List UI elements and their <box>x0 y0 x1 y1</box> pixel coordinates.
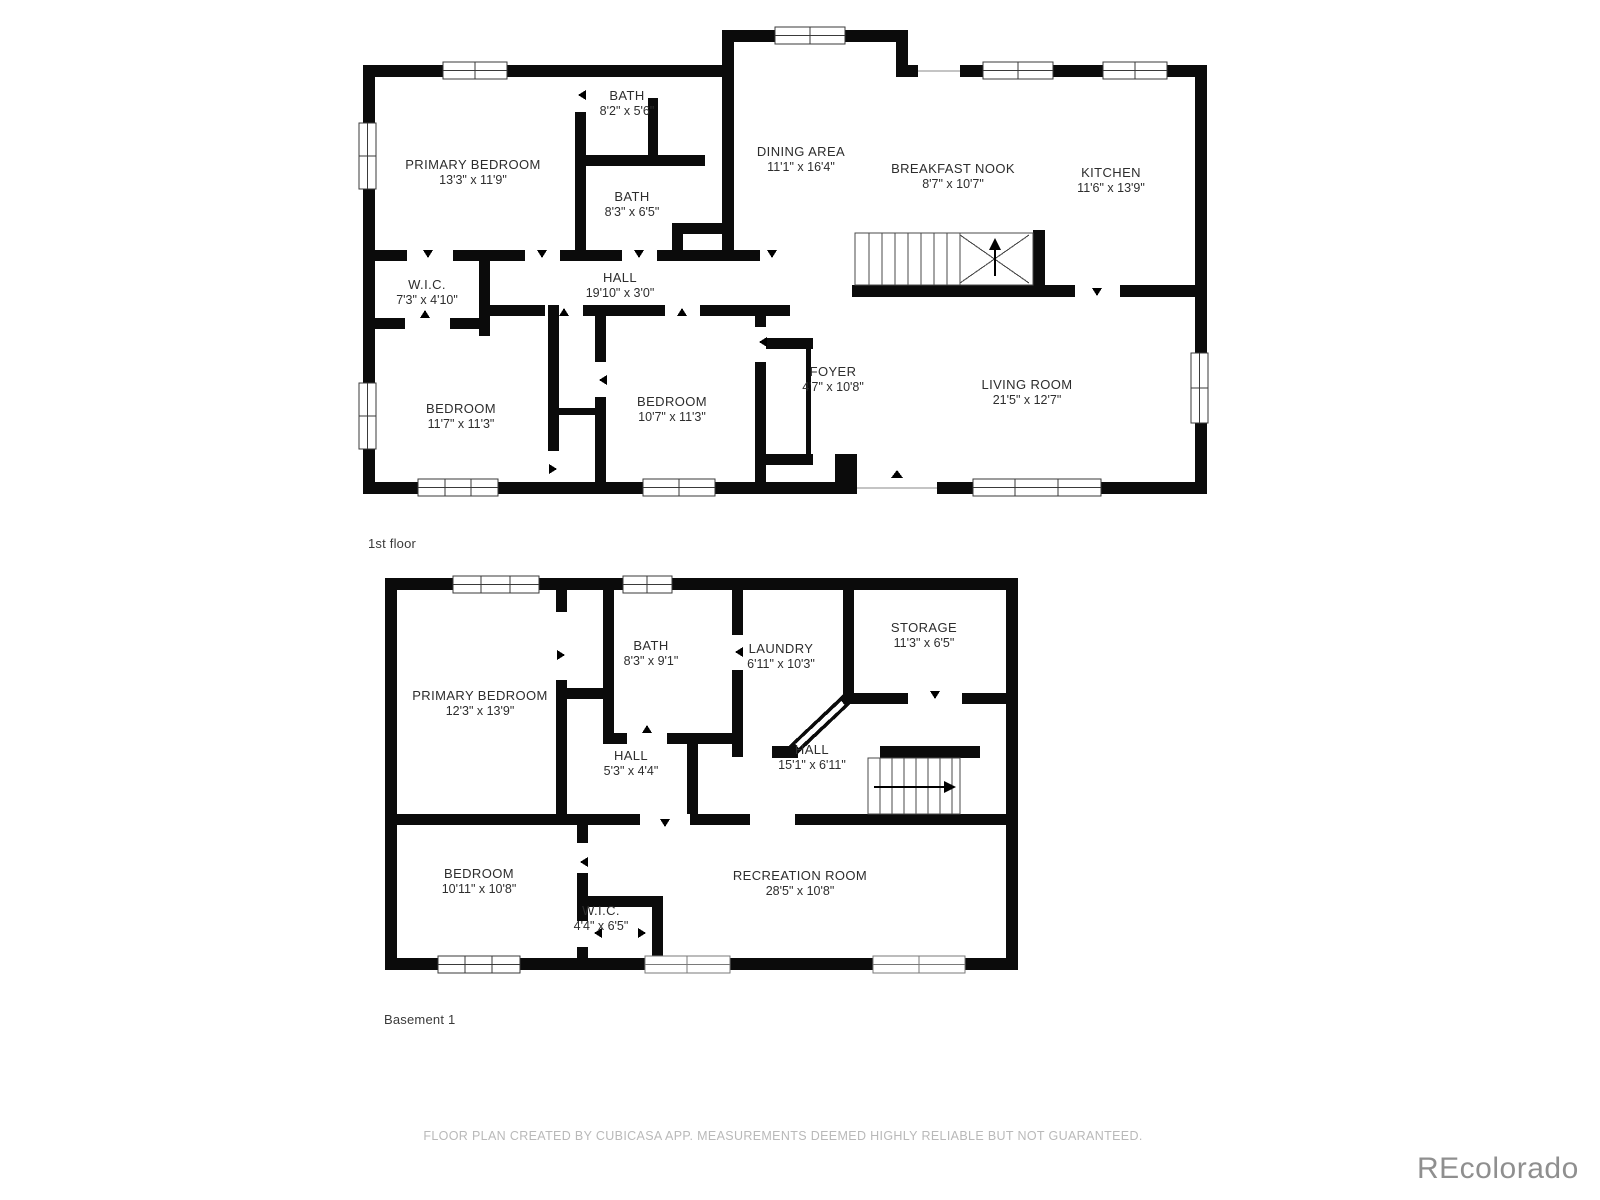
room-label-kitchen: KITCHEN 11'6" x 13'9" <box>1077 165 1145 196</box>
staircase-up <box>855 233 1033 285</box>
staircase-down <box>868 758 960 814</box>
room-label-recreation-room: RECREATION ROOM 28'5" x 10'8" <box>733 868 867 899</box>
room-label-primary-bedroom-b1: PRIMARY BEDROOM 12'3" x 13'9" <box>412 688 548 719</box>
room-label-bedroom2-1f: BEDROOM 10'7" x 11'3" <box>637 394 707 425</box>
room-label-primary-bedroom-1f: PRIMARY BEDROOM 13'3" x 11'9" <box>405 157 541 188</box>
floor-plan-page: { "floors": [ { "label": "1st floor", "r… <box>0 0 1600 1200</box>
room-label-storage: STORAGE 11'3" x 6'5" <box>891 620 957 651</box>
room-label-bath-b1: BATH 8'3" x 9'1" <box>624 638 679 669</box>
floor-caption-1st-floor: 1st floor <box>368 536 416 551</box>
room-label-breakfast-nook: BREAKFAST NOOK 8'7" x 10'7" <box>891 161 1015 192</box>
room-label-hall-small-b1: HALL 5'3" x 4'4" <box>604 748 659 779</box>
room-label-wic-1f: W.I.C. 7'3" x 4'10" <box>396 277 458 308</box>
room-label-bath2-1f: BATH 8'3" x 6'5" <box>605 189 660 220</box>
room-label-hall-large-b1: HALL 15'1" x 6'11" <box>778 742 846 773</box>
room-label-bedroom-b1: BEDROOM 10'11" x 10'8" <box>442 866 517 897</box>
disclaimer-text: FLOOR PLAN CREATED BY CUBICASA APP. MEAS… <box>423 1129 1142 1143</box>
room-label-dining-area: DINING AREA 11'1" x 16'4" <box>757 144 845 175</box>
room-label-hall-1f: HALL 19'10" x 3'0" <box>586 270 655 301</box>
room-label-bedroom1-1f: BEDROOM 11'7" x 11'3" <box>426 401 496 432</box>
recolorado-watermark: REcolorado <box>1417 1152 1579 1186</box>
room-label-wic-b1: W.I.C. 4'4" x 6'5" <box>574 903 629 934</box>
room-label-living-room: LIVING ROOM 21'5" x 12'7" <box>981 377 1072 408</box>
floor-caption-basement-1: Basement 1 <box>384 1012 455 1027</box>
room-label-bath1-1f: BATH 8'2" x 5'6" <box>600 88 655 119</box>
room-label-foyer: FOYER 4'7" x 10'8" <box>802 364 864 395</box>
room-label-laundry: LAUNDRY 6'11" x 10'3" <box>747 641 815 672</box>
